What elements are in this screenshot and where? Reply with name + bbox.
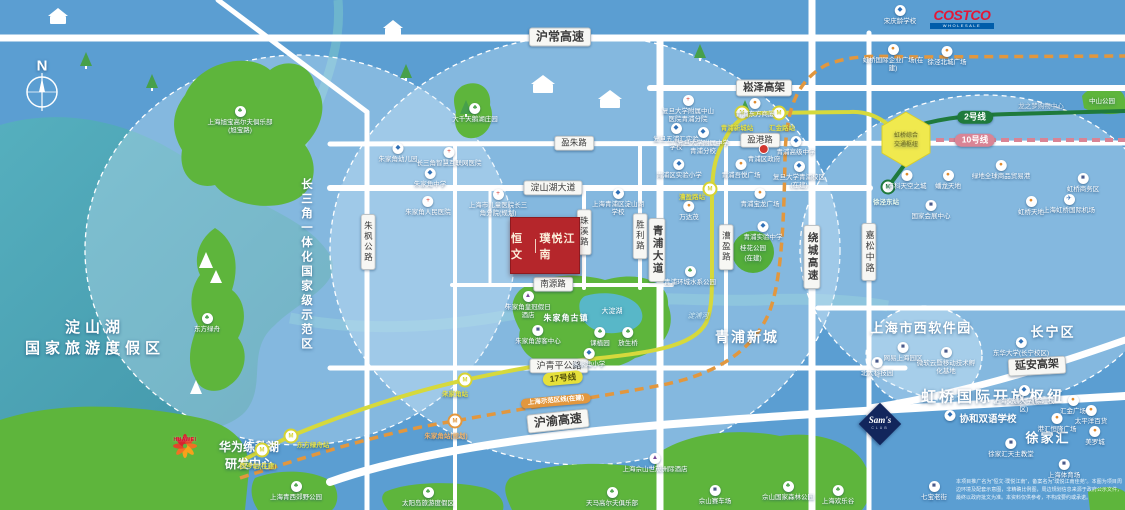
mall-icon: ● [902, 170, 913, 181]
metro-station-icon: M [458, 373, 473, 388]
park-icon: ♣ [623, 327, 634, 338]
poi-label: 太阳岛旅游度假区 [402, 500, 454, 508]
poi-label: 佘山国家森林公园 [762, 494, 814, 502]
sams-sub: CLUB [858, 426, 902, 430]
poi-label: 七宝老街 [921, 494, 947, 502]
poi-landmark: ■上海体育场 [1048, 459, 1081, 480]
poi-label: 绿地全球商品贸易港 [972, 173, 1031, 181]
poi-label: 东方绿舟 [194, 326, 220, 334]
landmark-icon: ■ [898, 342, 909, 353]
mall-icon: ● [755, 188, 766, 199]
poi-park: ♣上海青西郊野公园 [270, 481, 322, 502]
sams-club-logo: Sam's CLUB [858, 402, 902, 446]
landmark-icon: ■ [1078, 173, 1089, 184]
costco-logo: COSTCO WHOLESALE [930, 8, 994, 29]
school-icon: ◆ [1016, 337, 1027, 348]
poi-park: ♣大千天鹅湖庄园 [452, 103, 498, 124]
poi-park: ♣放生桥 [618, 327, 638, 348]
metro-station-label: 西岑站(在建) [240, 460, 277, 470]
project-brand: 恒文 [511, 230, 531, 262]
poi-park: ♣太阳岛旅游度假区 [402, 487, 454, 508]
poi-landmark: ■佘山赛车场 [699, 485, 732, 506]
school-icon: ◆ [895, 5, 906, 16]
poi-note: 龙之梦购物中心 [1018, 101, 1064, 111]
hotel-icon: ▲ [650, 453, 661, 464]
poi-transport: ✈上海虹桥国际机场 [1043, 194, 1095, 215]
poi-mall: ●美罗城 [1085, 426, 1105, 447]
poi-label: 万科天空之城 [888, 183, 927, 191]
metro-station-icon: M [448, 414, 463, 429]
poi-park: ♣上海欢乐谷 [822, 485, 855, 506]
school-icon: ◆ [698, 127, 709, 138]
landmark-icon: ■ [941, 347, 952, 358]
poi-label: 青浦东方商厦 [736, 111, 775, 119]
poi-label: 青浦区实验小学 [656, 172, 702, 180]
poi-school: ◆朱家角小学 [573, 348, 606, 369]
poi-label: 虹桥国际企业广场(在建) [862, 57, 924, 74]
school-icon: ◆ [945, 410, 956, 421]
road-label: 延安高架 [1008, 356, 1067, 377]
poi-label: 上海佘山世茂洲际酒店 [623, 466, 688, 474]
school-icon: ◆ [794, 161, 805, 172]
road-label: 沪渝高速 [526, 408, 590, 433]
hotel-icon: ▲ [523, 291, 534, 302]
poi-label: 万达茂 [679, 214, 699, 222]
poi-label: 虹桥商务区 [1067, 186, 1100, 194]
project-divider [535, 239, 536, 253]
road-label: 朱枫公路 [361, 214, 376, 270]
poi-landmark: ■微软云暨移动技术孵化基地 [915, 347, 977, 376]
metro-station-label: 东方绿舟站 [297, 439, 330, 449]
shixi-software-park: 上海市西软件园 [870, 318, 972, 337]
poi-hotel: ▲朱家角皇冠假日酒店 [503, 291, 553, 320]
poi-hotel: ▲上海佘山世茂洲际酒店 [623, 453, 688, 474]
poi-park: ♣课植园 [590, 327, 610, 348]
poi-school: ◆复旦大学附属中学青浦分校 [677, 127, 729, 156]
poi-mall: ●徐泾北城广场 [928, 46, 967, 67]
road-label: 漕盈路 [719, 224, 734, 270]
poi-label: 复旦大学青浦校区(在建) [772, 174, 826, 191]
poi-school: ◆宋庆龄学校 [884, 5, 917, 26]
park-icon: ♣ [202, 313, 213, 324]
poi-mall: ●虹桥国际企业广场(在建) [862, 44, 924, 73]
poi-label: 放生桥 [618, 340, 638, 348]
poi-school: ◆ [945, 410, 956, 421]
poi-label: 青浦吾悦广场 [722, 172, 761, 180]
metro-line-label: 17号线 [542, 370, 583, 386]
dianpu-river: 淀浦河 [688, 311, 709, 321]
poi-school: ◆上海交通大学(徐汇校区) [993, 385, 1055, 414]
metro-station-icon: M [255, 443, 270, 458]
school-icon: ◆ [425, 168, 436, 179]
poi-school: ◆朱家角中学 [414, 168, 447, 189]
poi-mall: ●青浦东方商厦 [736, 98, 775, 119]
landmark-icon: ■ [1006, 438, 1017, 449]
poi-school: ◆东华大学(长宁校区) [993, 337, 1049, 358]
metro-station-label: 汇金路站 [769, 122, 795, 132]
costco-wordmark: COSTCO [930, 8, 994, 22]
landmark-icon: ■ [710, 485, 721, 496]
park-icon: ♣ [291, 481, 302, 492]
costco-sub: WHOLESALE [930, 23, 994, 29]
hongqiao-hex-line: 虹桥综合 [894, 130, 918, 139]
poi-landmark: ■国家会展中心 [912, 200, 951, 221]
yangtze-demo-zone: 长三角一体化国家级示范区 [298, 178, 314, 352]
poi-label: 龙之梦购物中心 [1018, 103, 1064, 111]
mall-icon: ● [1086, 405, 1097, 416]
landmark-icon: ■ [872, 357, 883, 368]
zhongshan-park: 中山公园 [1089, 95, 1115, 105]
metro-line-label: 2号线 [957, 111, 993, 124]
mall-icon: ● [750, 98, 761, 109]
poi-mall: ●绿地全球商品贸易港 [972, 160, 1031, 181]
location-map: N淀山湖国家旅游度假区长三角一体化国家级示范区青浦新城虹桥国际开放枢纽上海市西软… [0, 0, 1125, 510]
poi-label: 复旦大学附属中山医院青浦分院 [659, 108, 717, 125]
sams-wordmark: Sam's [858, 415, 902, 425]
poi-school: ◆青浦高级中学 [777, 136, 816, 157]
poi-label: 朱家角游客中心 [515, 338, 561, 346]
park-icon: ♣ [685, 266, 696, 277]
metro-station-label: 徐泾东站 [873, 196, 899, 206]
golf-icon: ♣ [235, 106, 246, 117]
school-icon: ◆ [791, 136, 802, 147]
hongqiao-hex: 虹桥综合交通枢纽 [894, 130, 918, 148]
poi-park: ♣青浦环城水系公园 [664, 266, 716, 287]
qingpu-new-city: 青浦新城 [715, 327, 779, 347]
poi-hospital: +复旦大学附属中山医院青浦分院 [659, 95, 717, 124]
poi-landmark: ■北大科技园 [861, 357, 894, 378]
dianshan-lake-line: 国家旅游度假区 [25, 337, 165, 358]
hongqiao-hex-line: 交通枢纽 [894, 139, 918, 148]
landmark-icon: ■ [533, 325, 544, 336]
park-icon: ♣ [470, 103, 481, 114]
poi-label: 青浦环城水系公园 [664, 279, 716, 287]
hospital-icon: + [683, 95, 694, 106]
transport-icon: ✈ [1064, 194, 1075, 205]
poi-park: ♣东方绿舟 [194, 313, 220, 334]
guihua-park-line: 桂花公园 [740, 242, 766, 252]
poi-label: 天马高尔夫俱乐部 [586, 500, 638, 508]
poi-golf: ♣上海旭宝高尔夫俱乐部(旭宝路) [207, 106, 273, 135]
poi-mall: ●蟠龙天地 [935, 170, 961, 191]
poi-label: 上海旭宝高尔夫俱乐部(旭宝路) [207, 119, 273, 136]
park-icon: ♣ [595, 327, 606, 338]
road-label: 胜利路 [633, 213, 648, 259]
poi-label: 上海虹桥国际机场 [1043, 207, 1095, 215]
poi-label: 蟠龙天地 [935, 183, 961, 191]
poi-hospital: +长三角智慧互联网医院 [417, 147, 482, 168]
poi-label: 朱家角人民医院 [405, 209, 451, 217]
metro-station-label: 朱家角站 [442, 388, 468, 398]
poi-mall: ●青浦宝龙广场 [741, 188, 780, 209]
poi-label: 上海市儿童医院长三角分院(规划) [467, 202, 529, 219]
school-icon: ◆ [1019, 385, 1030, 396]
poi-landmark: ■七宝老街 [921, 481, 947, 502]
poi-school: ◆青浦区实验小学 [656, 159, 702, 180]
dianshan-lake: 淀山湖国家旅游度假区 [25, 316, 165, 358]
poi-label: 东华大学(长宁校区) [993, 350, 1049, 358]
poi-mall: ●港汇恒隆广场 [1038, 413, 1077, 434]
park-icon: ♣ [833, 485, 844, 496]
compass-n: N [37, 58, 48, 75]
road-label: 崧泽高架 [736, 79, 792, 96]
poi-label: 徐家汇天主教堂 [988, 451, 1034, 459]
guihua-park: 桂花公园(在建) [740, 242, 766, 262]
poi-landmark: ■徐家汇天主教堂 [988, 438, 1034, 459]
mall-icon: ● [1052, 413, 1063, 424]
poi-label: 朱家角幼儿园 [379, 156, 418, 164]
poi-label: 上海交通大学(徐汇校区) [993, 398, 1055, 415]
poi-hospital: +朱家角人民医院 [405, 196, 451, 217]
school-icon: ◆ [758, 221, 769, 232]
road-label: 嘉松中路 [861, 223, 876, 281]
poi-label: 宋庆龄学校 [884, 18, 917, 26]
poi-label: 港汇恒隆广场 [1038, 426, 1077, 434]
poi-label: 虹桥天地 [1018, 209, 1044, 217]
road-label: 青浦大道 [648, 218, 665, 282]
project-name: 璞悦江南 [540, 230, 579, 262]
landmark-icon: ■ [926, 200, 937, 211]
mall-icon: ● [1090, 426, 1101, 437]
dianshan-lake-line: 淀山湖 [25, 316, 165, 337]
poi-label: 北大科技园 [861, 370, 894, 378]
park-icon: ♣ [783, 481, 794, 492]
mall-icon: ● [943, 170, 954, 181]
poi-label: 太平洋百货 [1075, 418, 1108, 426]
road-label: 沪常高速 [529, 28, 591, 47]
poi-landmark: ■朱家角游客中心 [515, 325, 561, 346]
landmark-icon: ■ [929, 481, 940, 492]
poi-label: 上海欢乐谷 [822, 498, 855, 506]
poi-golf: ♣天马高尔夫俱乐部 [586, 487, 638, 508]
poi-label: 朱家角中学 [414, 181, 447, 189]
poi-label: 复旦大学附属中学青浦分校 [677, 140, 729, 157]
poi-mall: ●万科天空之城 [888, 170, 927, 191]
poi-school: ◆复旦大学青浦校区(在建) [772, 161, 826, 190]
poi-label: 大千天鹅湖庄园 [452, 116, 498, 124]
road-label: 绕城高速 [803, 225, 820, 289]
park-icon: ♣ [423, 487, 434, 498]
poi-school: ◆朱家角幼儿园 [379, 143, 418, 164]
poi-label: 青浦高级中学 [777, 149, 816, 157]
poi-label: 上海青西郊野公园 [270, 494, 322, 502]
poi-label: 课植园 [590, 340, 610, 348]
gov-icon [759, 144, 769, 154]
mall-icon: ● [1026, 196, 1037, 207]
poi-hospital: +上海市儿童医院长三角分院(规划) [467, 189, 529, 218]
golf-icon: ♣ [607, 487, 618, 498]
project-block: 恒文 璞悦江南 [510, 217, 580, 274]
mall-icon: ● [684, 201, 695, 212]
poi-school: ◆青浦实验中学 [744, 221, 783, 242]
mall-icon: ● [996, 160, 1007, 171]
hospital-icon: + [423, 196, 434, 207]
poi-school: ◆上海青浦区淀山湖学校 [589, 188, 647, 217]
school-icon: ◆ [584, 348, 595, 359]
huawei-logo: HUAWEI [168, 436, 202, 443]
hospital-icon: + [444, 147, 455, 158]
poi-mall: ●青浦吾悦广场 [722, 159, 761, 180]
poi-label: 朱家角小学 [573, 361, 606, 369]
landmark-icon: ■ [1059, 459, 1070, 470]
poi-label: 微软云暨移动技术孵化基地 [915, 360, 977, 377]
poi-label: 徐泾北城广场 [928, 59, 967, 67]
hospital-icon: + [493, 189, 504, 200]
poi-mall: ●虹桥天地 [1018, 196, 1044, 217]
poi-label: 青浦宝龙广场 [741, 201, 780, 209]
poi-label: 佘山赛车场 [699, 498, 732, 506]
poi-label: 青浦实验中学 [744, 234, 783, 242]
guihua-park-line: (在建) [740, 252, 766, 262]
poi-mall: ●太平洋百货 [1075, 405, 1108, 426]
poi-label: 长三角智慧互联网医院 [417, 160, 482, 168]
metro-line-label: 10号线 [955, 134, 995, 147]
dadian-lake: 大淀湖 [602, 306, 623, 316]
huawei-wordmark: HUAWEI [168, 437, 202, 443]
metro-station-label: 漕盈路站 [679, 191, 705, 201]
metro-station-label: 朱家角站(规划) [424, 430, 467, 440]
road-label: 盈朱路 [554, 136, 594, 151]
poi-label: 朱家角皇冠假日酒店 [503, 304, 553, 321]
poi-label: 上海青浦区淀山湖学校 [589, 201, 647, 218]
school-icon: ◆ [393, 143, 404, 154]
school-icon: ◆ [674, 159, 685, 170]
poi-park: ♣佘山国家森林公园 [762, 481, 814, 502]
huawei-campus-line: 华为练秋湖 [219, 438, 279, 455]
mall-icon: ● [888, 44, 899, 55]
road-label: 南源路 [533, 277, 573, 292]
mall-icon: ● [736, 159, 747, 170]
poi-label: 美罗城 [1085, 439, 1105, 447]
poi-label: 国家会展中心 [912, 213, 951, 221]
school-icon: ◆ [613, 188, 624, 199]
poi-mall: ●万达茂 [679, 201, 699, 222]
metro-line-label: 上海示范区线(在建) [521, 393, 592, 409]
mall-icon: ● [942, 46, 953, 57]
poi-landmark: ■虹桥商务区 [1067, 173, 1100, 194]
road-label: 淀山湖大道 [523, 180, 582, 195]
disclaimer-text: 本项目推广名为“恒文·璞悦江南”，备案名为“璞悦江南佳苑”。本图为项目周边环境及… [956, 479, 1122, 502]
